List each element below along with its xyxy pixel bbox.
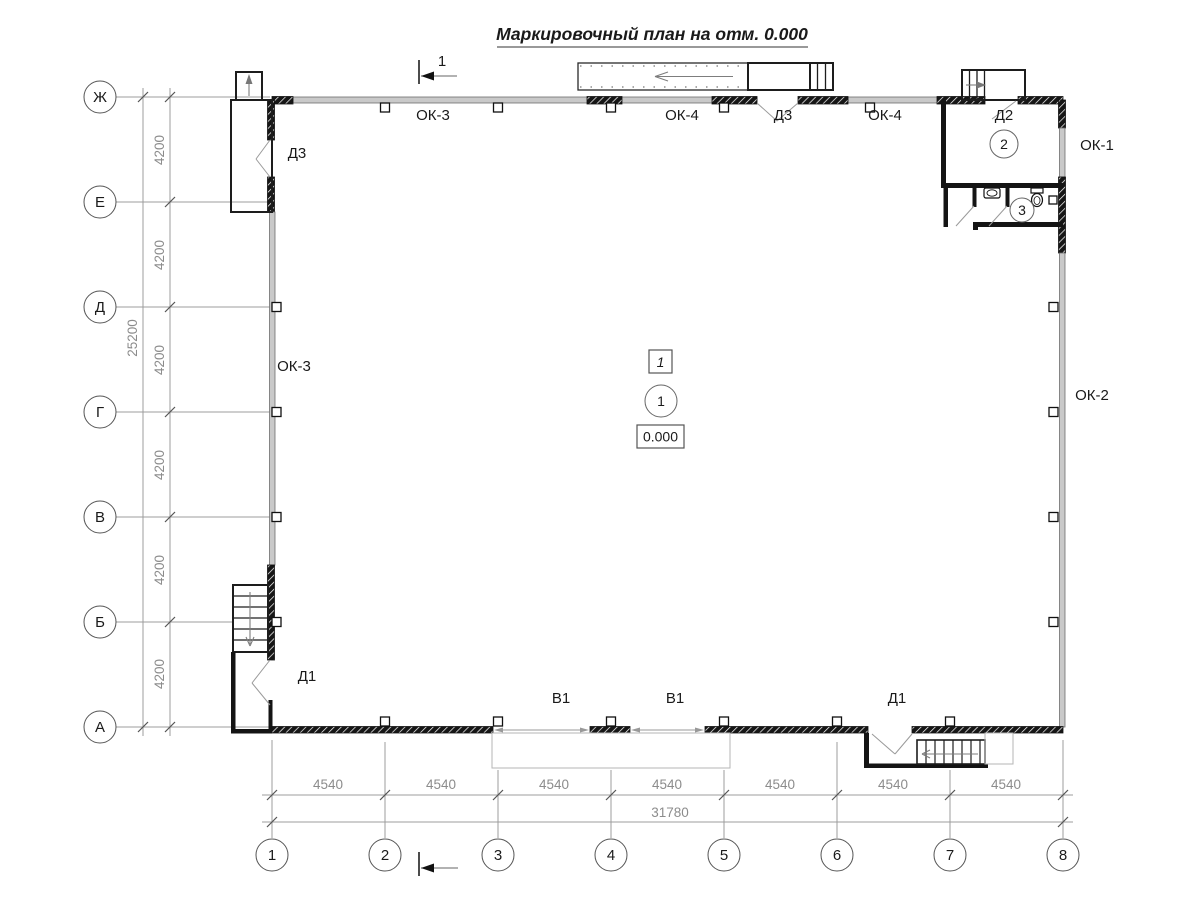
axis-bubble-zh: Ж	[84, 81, 116, 113]
axis-bubble-5: 5	[708, 839, 740, 871]
exit-arrow-icon	[246, 74, 253, 84]
dim-4200: 4200	[152, 450, 167, 480]
axis-letter: А	[95, 719, 105, 736]
dim-4540: 4540	[652, 777, 682, 792]
label-d3-top: Д3	[774, 107, 793, 124]
label-ok4-left: ОК-4	[665, 107, 699, 124]
axis-bubble-g: Г	[84, 396, 116, 428]
axis-bubble-1: 1	[256, 839, 288, 871]
axis-bubble-7: 7	[934, 839, 966, 871]
axis-number: 1	[268, 847, 276, 864]
entrance-platform	[748, 63, 810, 90]
label-ok1: ОК-1	[1080, 137, 1114, 154]
label-d2: Д2	[995, 107, 1014, 124]
axis-number: 6	[833, 847, 841, 864]
axis-bubble-4: 4	[595, 839, 627, 871]
section-arrow-icon	[421, 72, 434, 81]
axis-number: 4	[607, 847, 615, 864]
window-band-right-ok1	[1060, 128, 1066, 177]
dim-4200: 4200	[152, 555, 167, 585]
elevation-value: 0.000	[643, 429, 678, 445]
ramp-top-middle	[578, 63, 833, 121]
axis-bubble-b: Б	[84, 606, 116, 638]
section-arrow-icon	[421, 864, 434, 873]
room1-number: 1	[657, 393, 665, 409]
label-ok3-top: ОК-3	[416, 107, 450, 124]
label-ok2: ОК-2	[1075, 387, 1109, 404]
dim-4200: 4200	[152, 135, 167, 165]
gates-bottom	[492, 728, 730, 769]
room-markers: 1 1 0.000 2 3	[637, 130, 1034, 448]
axis-number: 7	[946, 847, 954, 864]
label-d3-left: Д3	[288, 145, 307, 162]
page-title: Маркировочный план на отм. 0.000	[496, 24, 808, 44]
axis-letter: Д	[95, 299, 105, 316]
window-band-right-ok2	[1060, 253, 1066, 727]
axis-bubble-e: Е	[84, 186, 116, 218]
axis-bubble-d: Д	[84, 291, 116, 323]
entrance-top-right	[962, 70, 1025, 119]
axis-number: 2	[381, 847, 389, 864]
axis-bubble-a: А	[84, 711, 116, 743]
label-ok4-right: ОК-4	[868, 107, 902, 124]
dim-4540: 4540	[878, 777, 908, 792]
axis-letter: Е	[95, 194, 105, 211]
axis-bubble-v: В	[84, 501, 116, 533]
stair-bottom-left	[231, 585, 272, 734]
dim-4200: 4200	[152, 345, 167, 375]
label-d1-bottom: Д1	[888, 690, 907, 707]
axis-letter: Б	[95, 614, 105, 631]
axis-letter: Ж	[93, 89, 107, 106]
dim-total-horizontal: 31780	[651, 805, 689, 820]
axis-bubble-3: 3	[482, 839, 514, 871]
dim-4540: 4540	[539, 777, 569, 792]
label-v1-right: В1	[666, 690, 684, 707]
entrance-stairs	[810, 63, 833, 90]
axis-number: 5	[720, 847, 728, 864]
sink-fixture	[984, 188, 1000, 198]
dim-4200: 4200	[152, 659, 167, 689]
axis-bubble-8: 8	[1047, 839, 1079, 871]
dim-4540: 4540	[991, 777, 1021, 792]
window-band-top-left	[293, 97, 757, 103]
dim-4200: 4200	[152, 240, 167, 270]
floor-plan-drawing: Маркировочный план на отм. 0.000 Ж Е Д Г…	[0, 0, 1200, 900]
window-band-top-right	[848, 97, 941, 103]
section-mark-top: 1	[419, 53, 457, 84]
dim-4540: 4540	[426, 777, 456, 792]
label-d1-left: Д1	[298, 668, 317, 685]
axis-number: 3	[494, 847, 502, 864]
dim-4540: 4540	[765, 777, 795, 792]
room3-number: 3	[1018, 202, 1026, 218]
loading-dock-platform	[492, 733, 730, 768]
plan-canvas: Маркировочный план на отм. 0.000 Ж Е Д Г…	[0, 0, 1200, 900]
section-number: 1	[438, 53, 446, 70]
section-mark-bottom	[419, 852, 458, 876]
label-v1-left: В1	[552, 690, 570, 707]
axis-number: 8	[1059, 847, 1067, 864]
axis-letter: Г	[96, 404, 104, 421]
axis-bubble-6: 6	[821, 839, 853, 871]
dim-4540: 4540	[313, 777, 343, 792]
floor-type-number: 1	[657, 354, 665, 370]
label-ok3-left: ОК-3	[277, 358, 311, 375]
axis-bubble-2: 2	[369, 839, 401, 871]
entrance-porch-top-left	[231, 72, 272, 212]
dim-total-vertical: 25200	[125, 319, 140, 357]
drawing-title: Маркировочный план на отм. 0.000	[496, 24, 808, 47]
axis-letter: В	[95, 509, 105, 526]
entrance-bottom-right	[864, 733, 1013, 768]
room2-number: 2	[1000, 136, 1008, 152]
